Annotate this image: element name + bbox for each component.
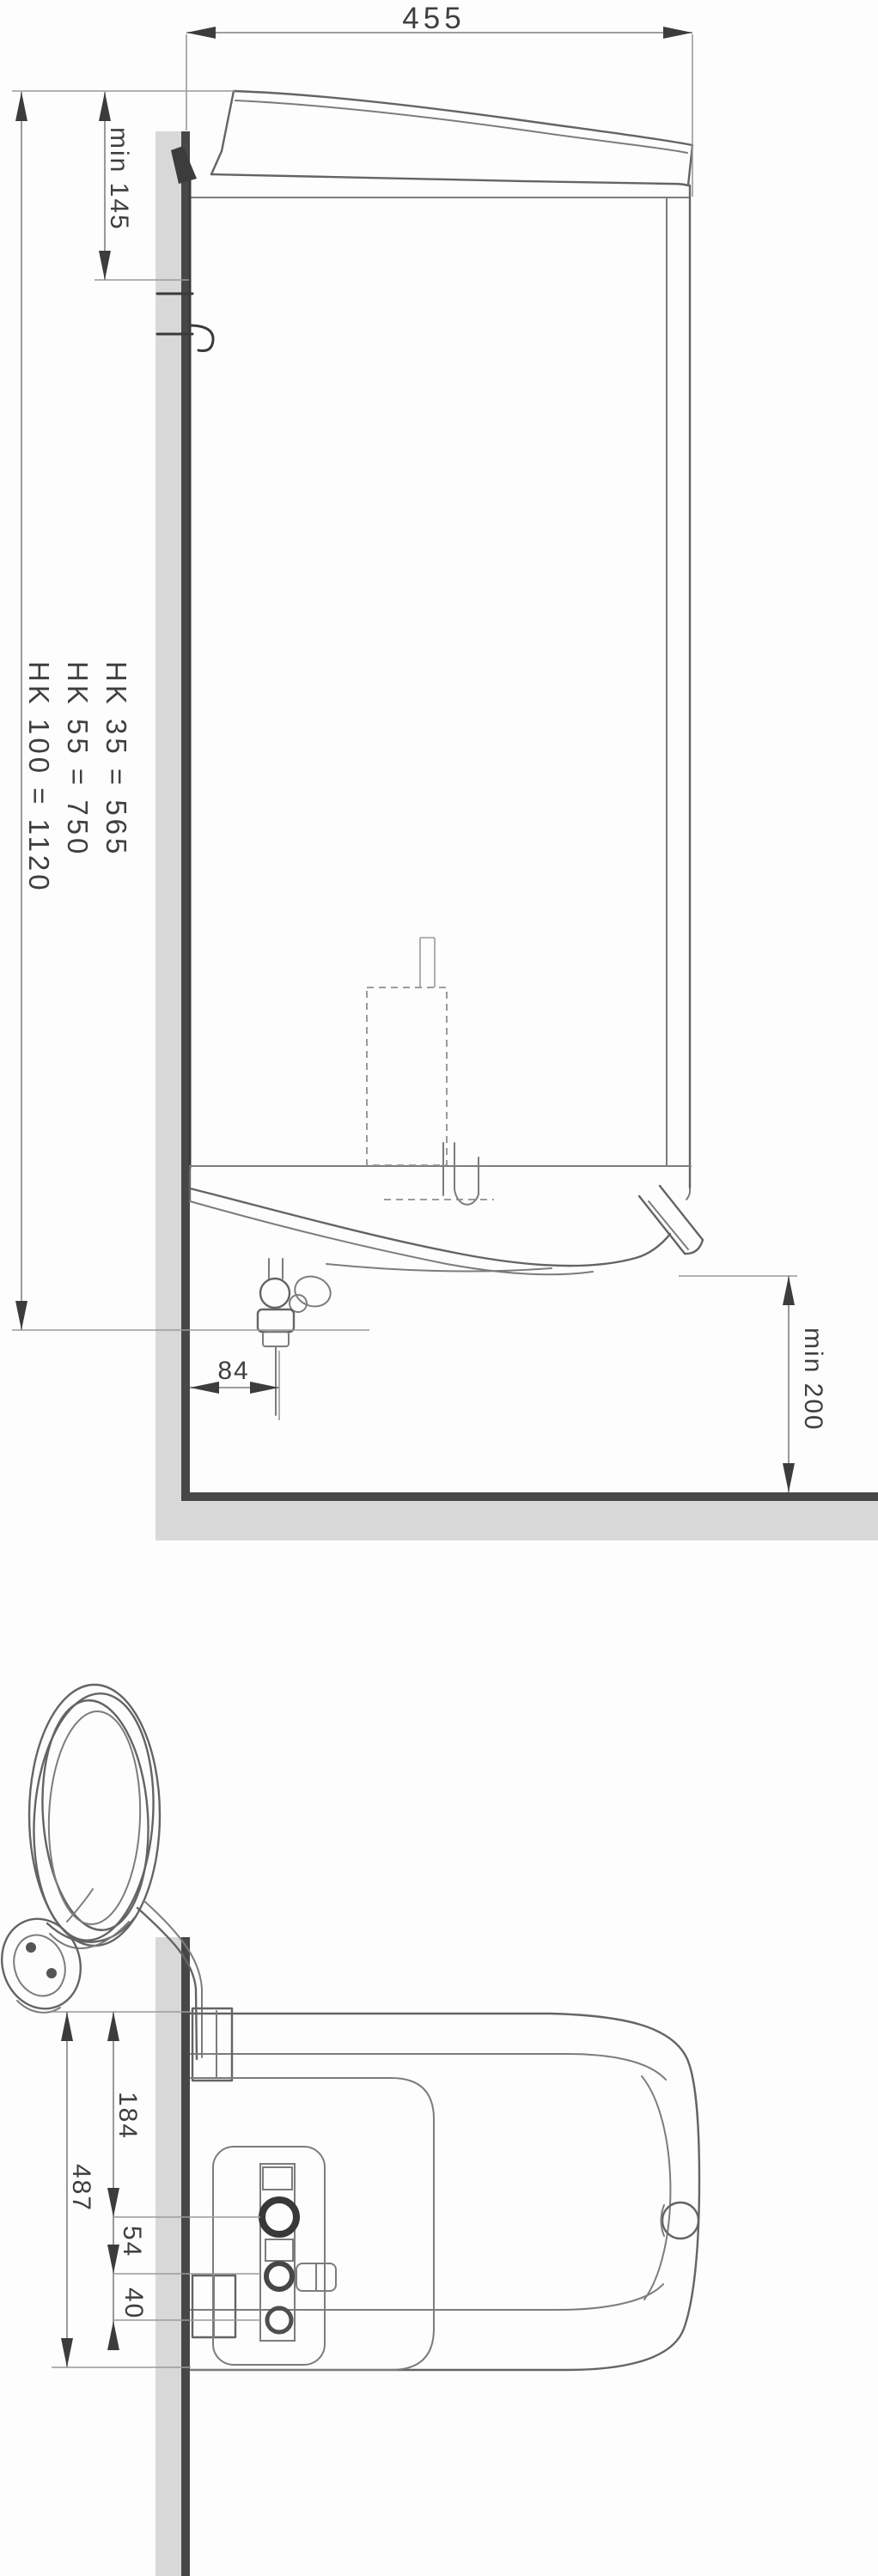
dim-min-200: min 200 — [679, 1276, 827, 1492]
drawing-canvas: 455 HK 35 = 565 HK 55 = 750 HK 100 = 112… — [0, 0, 878, 2576]
pipe-connection-3 — [267, 2308, 291, 2332]
dim-label-hk35: HK 35 = 565 — [101, 661, 132, 857]
top-view-drawing: 487 184 54 40 — [0, 1685, 699, 2576]
tank-dome-seam — [642, 2076, 670, 2300]
outlet-pipe — [639, 1186, 703, 1254]
dim-label-455: 455 — [402, 2, 465, 35]
dim-label-40: 40 — [119, 2287, 148, 2319]
wall-section — [155, 131, 878, 1540]
dim-label-54: 54 — [118, 2226, 146, 2257]
power-plug — [0, 1889, 93, 2019]
dim-label-84: 84 — [217, 1357, 249, 1385]
wall-section-top-view — [155, 1937, 190, 2576]
dim-width-455: 455 — [186, 2, 692, 197]
floor-line — [181, 1492, 878, 1501]
dim-valve-offset-84: 84 — [190, 1351, 279, 1420]
cover-panel-outer — [191, 2078, 434, 2370]
water-heater-side-view — [157, 91, 703, 1415]
internal-heating-element — [367, 938, 494, 1205]
lid-top-edge — [234, 91, 692, 145]
water-heater-top-view — [191, 2008, 699, 2370]
dim-label-487: 487 — [67, 2164, 95, 2212]
floor-shadow — [181, 1501, 878, 1540]
side-knob — [662, 2202, 698, 2239]
cover-panel-inner — [213, 2147, 325, 2365]
side-view-drawing: 455 HK 35 = 565 HK 55 = 750 HK 100 = 112… — [12, 2, 878, 1540]
dim-label-min200: min 200 — [799, 1327, 827, 1431]
dim-label-min145: min 145 — [105, 127, 133, 231]
pipe-connection-1 — [262, 2200, 296, 2234]
dim-label-hk55: HK 55 = 750 — [62, 661, 94, 857]
dim-label-184: 184 — [113, 2092, 142, 2140]
mounting-bracket-top — [192, 2008, 232, 2081]
bottom-casing-edge — [190, 1188, 670, 1266]
dim-label-hk100: HK 100 = 1120 — [23, 661, 55, 894]
pipe-connection-2 — [266, 2263, 292, 2289]
safety-valve — [258, 1259, 334, 1415]
